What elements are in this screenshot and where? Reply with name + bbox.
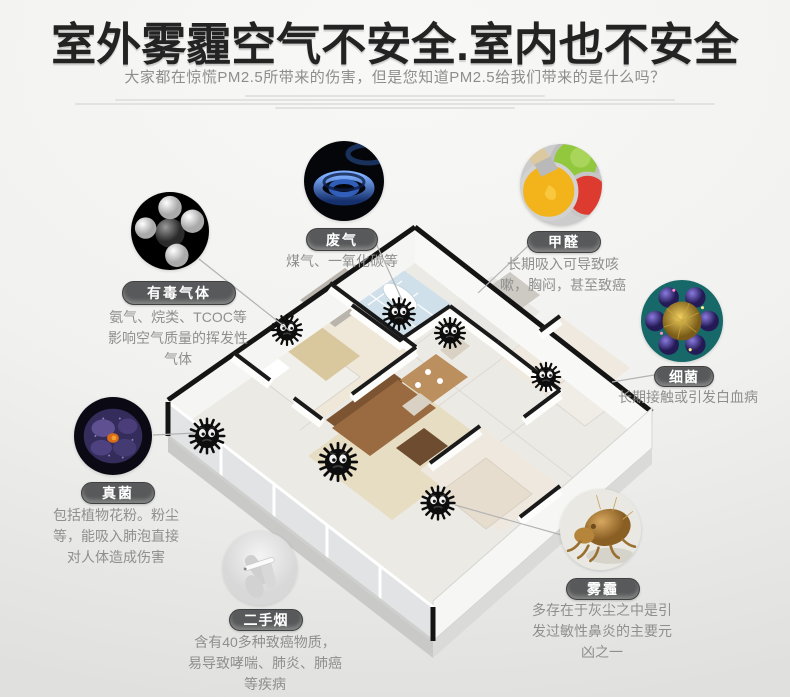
- infographic-page: 室外雾霾空气不安全.室内也不安全 大家都在惊慌PM2.5所带来的伤害，但是您知道…: [0, 0, 790, 697]
- apartment-floorplan-illustration: [0, 0, 790, 697]
